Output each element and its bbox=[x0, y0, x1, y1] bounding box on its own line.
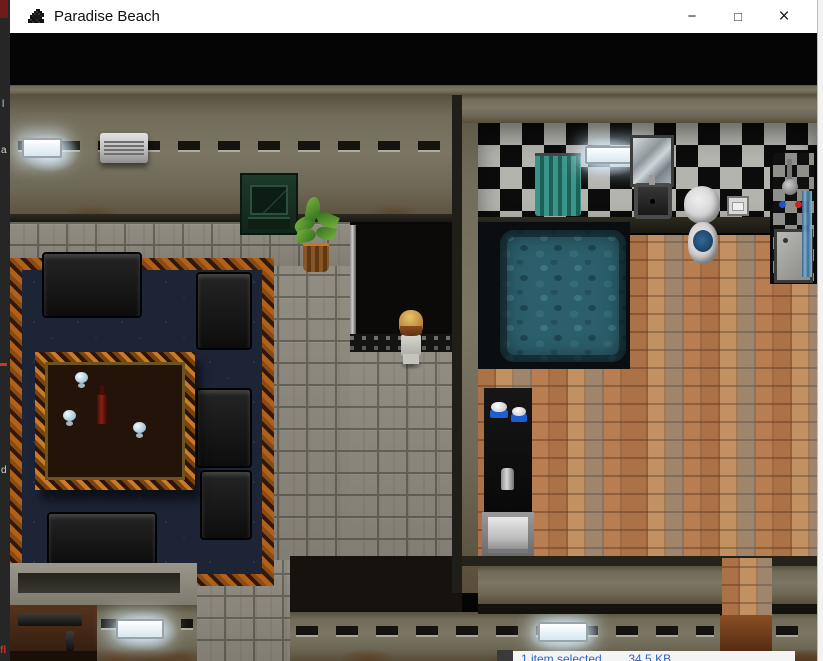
maximize-icon: □ bbox=[734, 9, 742, 24]
background-app-edge: l a d fl bbox=[0, 0, 10, 661]
character-legs bbox=[403, 354, 419, 364]
edge-text-fragment: d bbox=[1, 466, 7, 476]
background-app-accent bbox=[0, 0, 8, 18]
shower-head bbox=[782, 179, 798, 195]
sideboard-desk bbox=[10, 605, 97, 661]
sofa-top bbox=[42, 252, 142, 318]
ledge-slot bbox=[18, 573, 180, 593]
bathroom-south-band bbox=[772, 566, 817, 604]
character-body bbox=[401, 334, 421, 356]
screenshot-root: l a d fl Paradise Beach − □ × bbox=[0, 0, 823, 661]
south-ledge bbox=[10, 563, 197, 605]
window-controls: − □ × bbox=[669, 0, 807, 33]
tv-cabinet bbox=[240, 173, 298, 235]
room-divider-wall bbox=[462, 95, 478, 593]
sunken-bathtub bbox=[500, 230, 626, 362]
south-shadow bbox=[290, 556, 462, 614]
app-icon bbox=[26, 7, 46, 27]
terracotta-doorway bbox=[722, 558, 772, 620]
cold-knob bbox=[779, 201, 786, 208]
wash-basin bbox=[634, 183, 672, 219]
toilet-paper-roll bbox=[732, 202, 744, 211]
plant-leaf bbox=[315, 225, 337, 241]
edge-text-fragment: a bbox=[1, 146, 7, 156]
minimize-icon: − bbox=[688, 8, 697, 25]
maximize-button[interactable]: □ bbox=[715, 0, 761, 33]
sofa-bottom bbox=[47, 512, 157, 566]
bathroom-south-band bbox=[478, 566, 722, 604]
potted-plant bbox=[292, 195, 340, 271]
towel bbox=[488, 517, 528, 553]
south-band-shadow bbox=[478, 604, 722, 614]
hot-knob bbox=[795, 201, 802, 208]
drain bbox=[783, 238, 788, 243]
toilet-tank bbox=[684, 186, 720, 224]
wine-glass bbox=[133, 422, 146, 433]
character-hair-fringe bbox=[400, 326, 422, 336]
drain bbox=[650, 199, 655, 204]
minimize-button[interactable]: − bbox=[669, 0, 715, 33]
desk-shadow bbox=[10, 651, 97, 661]
wall-vent-row bbox=[296, 626, 714, 638]
player-character bbox=[396, 308, 426, 372]
game-viewport[interactable] bbox=[10, 33, 817, 661]
south-band-shadow bbox=[772, 604, 817, 614]
wall-light bbox=[538, 622, 588, 642]
wall-baseboard bbox=[10, 214, 462, 222]
stereo-equipment bbox=[66, 631, 74, 651]
armchair bbox=[196, 388, 252, 468]
outer-wall-top bbox=[10, 85, 817, 95]
edge-text-fragment: l bbox=[2, 100, 4, 110]
wall-light bbox=[22, 138, 62, 158]
coffee-table bbox=[35, 352, 195, 490]
stone-floor-hallway bbox=[350, 352, 462, 560]
close-icon: × bbox=[778, 6, 789, 28]
window-title: Paradise Beach bbox=[54, 8, 160, 25]
towel-rack bbox=[482, 512, 534, 556]
wall-vent-row bbox=[776, 626, 814, 638]
air-conditioner bbox=[100, 133, 148, 163]
shower-glass-panel bbox=[802, 191, 812, 277]
door-frame-pole bbox=[350, 225, 356, 349]
bowl bbox=[491, 402, 507, 412]
edge-red-dash bbox=[0, 363, 7, 366]
edge-text-fragment: fl bbox=[0, 646, 6, 656]
bowl bbox=[512, 407, 526, 416]
shower-stall bbox=[770, 150, 817, 284]
armchair bbox=[200, 470, 252, 540]
toilet-water bbox=[693, 230, 713, 252]
canister bbox=[501, 468, 514, 490]
window-right-border bbox=[817, 0, 823, 661]
bathroom-outer-band bbox=[462, 95, 817, 123]
ac-vents bbox=[104, 141, 144, 155]
stereo-equipment bbox=[18, 613, 82, 626]
toilet bbox=[688, 222, 718, 264]
faucet bbox=[649, 175, 655, 185]
status-bar-block bbox=[497, 650, 513, 661]
wine-bottle bbox=[97, 394, 107, 424]
status-bar[interactable]: 1 item selected 34.5 KB bbox=[513, 651, 795, 661]
title-bar[interactable]: Paradise Beach − □ × bbox=[10, 0, 817, 33]
tv-screen bbox=[250, 185, 288, 215]
room-divider-shadow bbox=[452, 95, 462, 593]
plant-pot bbox=[303, 243, 329, 272]
wine-glass bbox=[63, 410, 76, 421]
toilet-paper-holder bbox=[727, 196, 749, 216]
game-window: Paradise Beach − □ × bbox=[10, 0, 817, 661]
status-text: 1 item selected 34.5 KB bbox=[521, 652, 671, 661]
armchair bbox=[196, 272, 252, 350]
wine-glass bbox=[75, 372, 88, 383]
tv-cabinet-shelf bbox=[248, 217, 290, 229]
terracotta-floor bbox=[630, 235, 817, 565]
wall-light bbox=[116, 619, 164, 639]
bathroom-counter bbox=[484, 388, 532, 512]
close-button[interactable]: × bbox=[761, 0, 807, 33]
